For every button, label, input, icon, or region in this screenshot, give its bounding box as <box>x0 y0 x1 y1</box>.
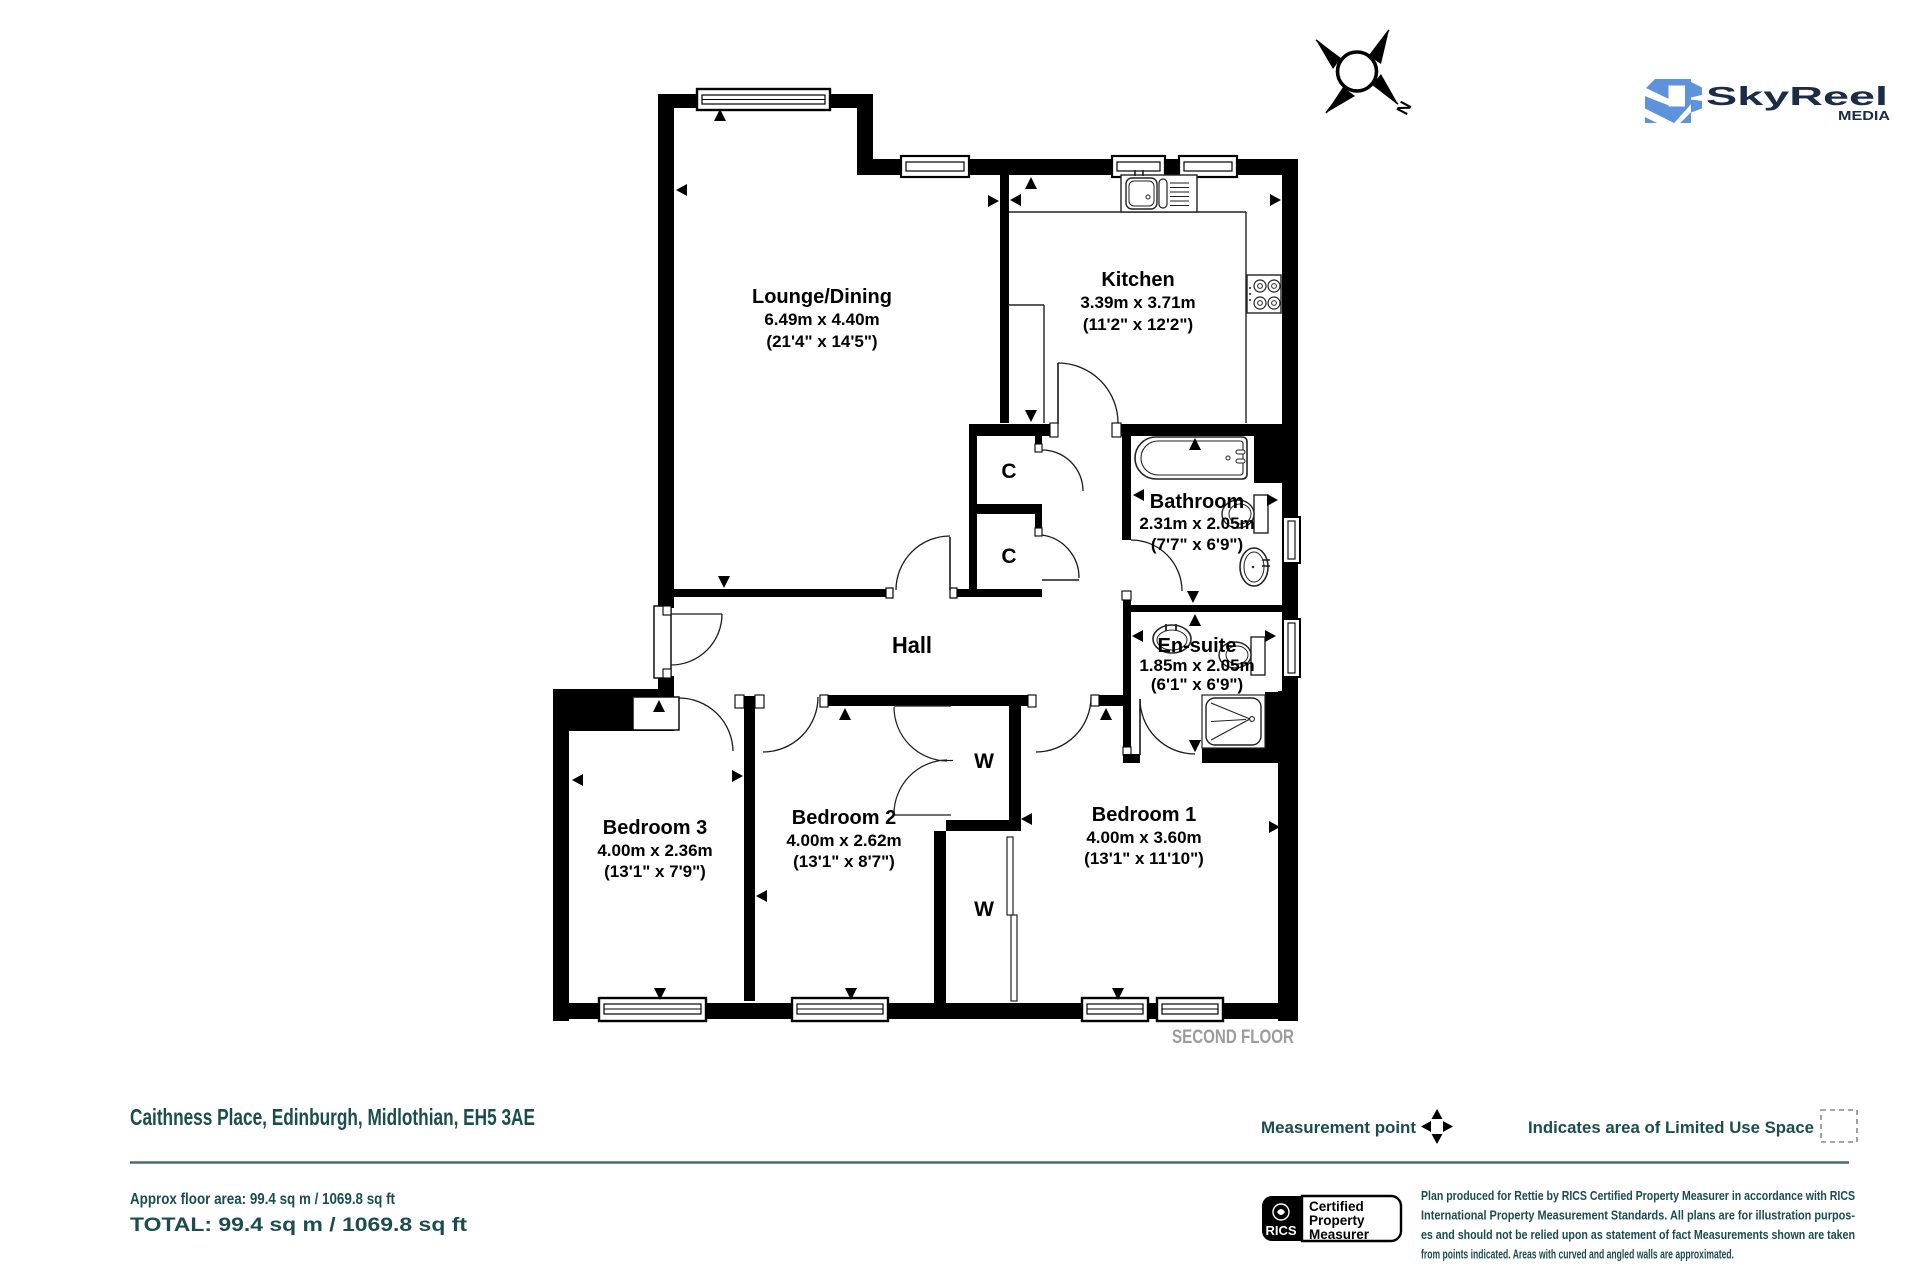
svg-text:Measurer: Measurer <box>1309 1227 1370 1242</box>
svg-text:(21'4" x 14'5"): (21'4" x 14'5") <box>766 332 877 351</box>
svg-text:C: C <box>1001 545 1016 568</box>
svg-text:2.31m x 2.05m: 2.31m x 2.05m <box>1139 514 1254 533</box>
svg-text:Bathroom: Bathroom <box>1150 491 1244 513</box>
svg-text:Bedroom 1: Bedroom 1 <box>1092 804 1196 826</box>
svg-text:1.85m x 2.05m: 1.85m x 2.05m <box>1139 656 1254 675</box>
svg-text:Hall: Hall <box>892 632 932 658</box>
svg-text:W: W <box>974 898 994 921</box>
svg-text:6.49m x 4.40m: 6.49m x 4.40m <box>764 310 879 329</box>
svg-text:(7'7" x 6'9"): (7'7" x 6'9") <box>1151 535 1243 554</box>
svg-text:Bedroom 2: Bedroom 2 <box>792 807 896 829</box>
svg-text:Plan produced for Rettie by RI: Plan produced for Rettie by RICS Certifi… <box>1421 1188 1855 1203</box>
svg-text:(13'1" x 7'9"): (13'1" x 7'9") <box>604 862 706 881</box>
svg-text:3.39m x 3.71m: 3.39m x 3.71m <box>1080 293 1195 312</box>
svg-text:(6'1" x 6'9"): (6'1" x 6'9") <box>1151 675 1243 694</box>
svg-text:Caithness Place, Edinburgh, Mi: Caithness Place, Edinburgh, Midlothian, … <box>130 1104 535 1130</box>
svg-text:C: C <box>1001 460 1016 483</box>
svg-text:Bedroom 3: Bedroom 3 <box>603 817 707 839</box>
svg-text:(13'1" x 8'7"): (13'1" x 8'7") <box>793 852 895 871</box>
svg-text:RICS: RICS <box>1265 1223 1296 1238</box>
svg-text:SECOND FLOOR: SECOND FLOOR <box>1172 1027 1294 1048</box>
svg-text:4.00m x 2.62m: 4.00m x 2.62m <box>786 831 901 850</box>
svg-text:(11'2" x 12'2"): (11'2" x 12'2") <box>1083 315 1193 334</box>
svg-text:MEDIA: MEDIA <box>1838 109 1890 123</box>
svg-text:International Property Measur: International Property Measurement Stand… <box>1421 1208 1855 1223</box>
svg-text:Certified: Certified <box>1309 1199 1364 1214</box>
svg-text:Approx floor area: 99.4 sq m /: Approx floor area: 99.4 sq m / 1069.8 sq… <box>130 1191 395 1208</box>
svg-text:Measurement point: Measurement point <box>1261 1118 1416 1137</box>
svg-text:Lounge/Dining: Lounge/Dining <box>752 286 892 308</box>
svg-text:TOTAL: 99.4 sq m / 1069.8 sq f: TOTAL: 99.4 sq m / 1069.8 sq ft <box>130 1214 468 1236</box>
svg-text:En-suite: En-suite <box>1158 635 1237 657</box>
svg-text:W: W <box>974 750 994 773</box>
svg-text:es and should not be relied up: es and should not be relied upon as stat… <box>1421 1227 1855 1242</box>
svg-text:4.00m x 2.36m: 4.00m x 2.36m <box>597 841 712 860</box>
svg-text:from points indicated. Areas w: from points indicated. Areas with curved… <box>1421 1247 1734 1262</box>
svg-text:SkyReel: SkyReel <box>1706 81 1888 111</box>
svg-text:Property: Property <box>1309 1213 1365 1228</box>
svg-text:(13'1" x 11'10"): (13'1" x 11'10") <box>1084 849 1204 868</box>
svg-text:4.00m x 3.60m: 4.00m x 3.60m <box>1086 828 1201 847</box>
svg-text:Kitchen: Kitchen <box>1101 269 1174 291</box>
svg-text:Indicates area of Limited Use: Indicates area of Limited Use Space <box>1528 1118 1814 1137</box>
